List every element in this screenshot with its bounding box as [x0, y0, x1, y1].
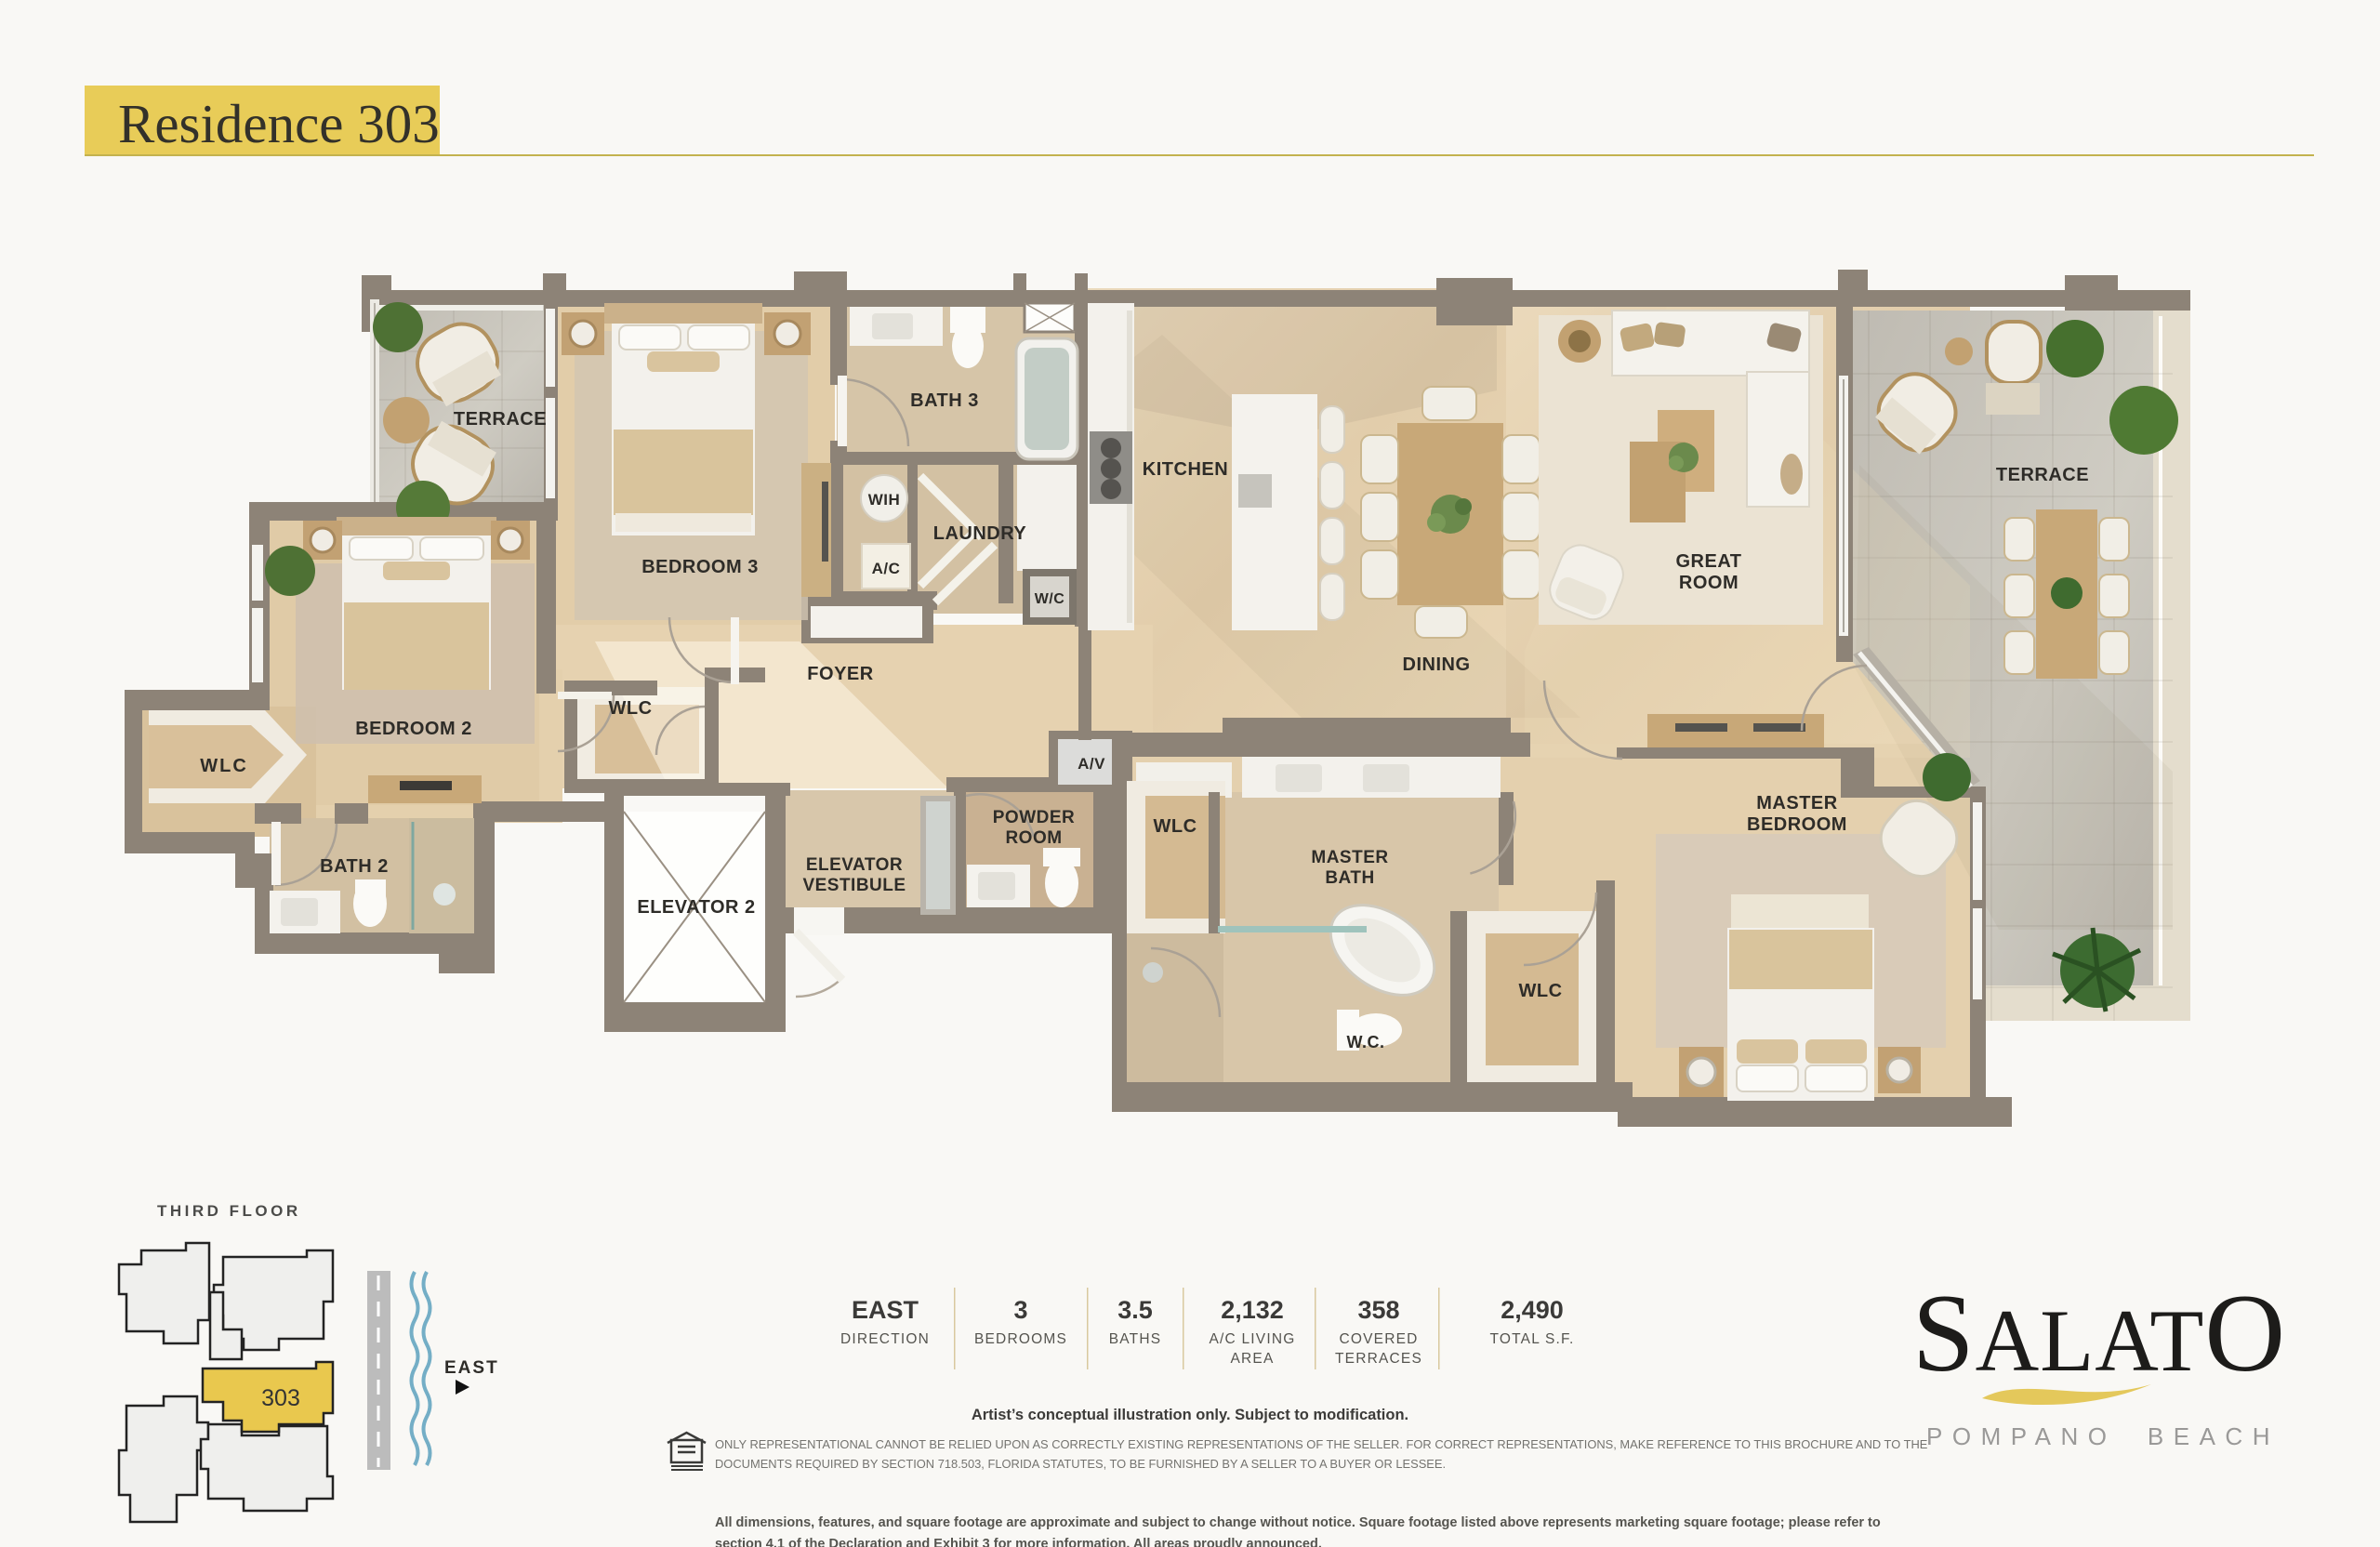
svg-text:WIH: WIH	[868, 491, 901, 509]
svg-text:BEDROOM 3: BEDROOM 3	[641, 557, 759, 577]
svg-text:EAST: EAST	[444, 1358, 499, 1378]
svg-text:COVERED: COVERED	[1339, 1331, 1418, 1347]
svg-text:BEDROOM 2: BEDROOM 2	[355, 719, 472, 739]
svg-text:A/C: A/C	[872, 560, 901, 577]
svg-text:ONLY REPRESENTATIONAL CANNOT B: ONLY REPRESENTATIONAL CANNOT BE RELIED U…	[715, 1437, 1928, 1451]
svg-text:3: 3	[1013, 1296, 1027, 1324]
svg-text:TOTAL S.F.: TOTAL S.F.	[1490, 1331, 1575, 1347]
svg-text:BATH: BATH	[1325, 868, 1374, 888]
svg-text:DIRECTION: DIRECTION	[840, 1331, 930, 1347]
svg-text:W/C: W/C	[1035, 591, 1065, 607]
svg-text:BATH 3: BATH 3	[910, 390, 979, 411]
svg-text:POMPANO BEACH: POMPANO BEACH	[1926, 1422, 2280, 1450]
svg-text:DINING: DINING	[1403, 654, 1471, 675]
svg-text:WLC: WLC	[1518, 981, 1562, 1001]
svg-text:POWDER: POWDER	[993, 808, 1076, 827]
svg-text:ROOM: ROOM	[1679, 573, 1739, 593]
svg-text:BATHS: BATHS	[1109, 1331, 1162, 1347]
svg-text:TERRACE: TERRACE	[454, 409, 547, 430]
svg-text:ELEVATOR 2: ELEVATOR 2	[637, 897, 755, 918]
svg-text:ELEVATOR: ELEVATOR	[806, 855, 903, 875]
svg-text:BATH 2: BATH 2	[320, 856, 389, 877]
svg-text:KITCHEN: KITCHEN	[1143, 459, 1228, 480]
svg-text:2,490: 2,490	[1501, 1296, 1564, 1324]
svg-text:3.5: 3.5	[1117, 1296, 1153, 1324]
svg-text:WLC: WLC	[608, 698, 652, 719]
svg-text:SALATO: SALATO	[1912, 1271, 2286, 1395]
svg-text:EAST: EAST	[852, 1296, 919, 1324]
svg-text:section 4.1 of the Declaration: section 4.1 of the Declaration and Exhib…	[715, 1537, 1322, 1547]
svg-text:BEDROOM: BEDROOM	[1747, 814, 1847, 835]
svg-text:THIRD FLOOR: THIRD FLOOR	[157, 1202, 301, 1220]
svg-text:358: 358	[1357, 1296, 1399, 1324]
svg-text:WLC: WLC	[200, 756, 248, 776]
svg-text:303: 303	[261, 1385, 300, 1411]
svg-text:LAUNDRY: LAUNDRY	[933, 523, 1027, 544]
svg-text:2,132: 2,132	[1221, 1296, 1284, 1324]
svg-text:A/C LIVING: A/C LIVING	[1210, 1331, 1296, 1347]
svg-text:MASTER: MASTER	[1311, 848, 1388, 867]
svg-text:MASTER: MASTER	[1756, 793, 1838, 813]
svg-text:FOYER: FOYER	[807, 664, 873, 684]
svg-text:BEDROOMS: BEDROOMS	[974, 1331, 1067, 1347]
svg-text:Artist’s conceptual illustrati: Artist’s conceptual illustration only. S…	[972, 1407, 1408, 1423]
svg-text:All dimensions, features, and: All dimensions, features, and square foo…	[715, 1515, 1881, 1530]
svg-text:W.C.: W.C.	[1347, 1033, 1385, 1051]
svg-text:WLC: WLC	[1153, 816, 1197, 837]
svg-text:TERRACE: TERRACE	[1996, 465, 2089, 485]
svg-text:VESTIBULE: VESTIBULE	[802, 876, 906, 895]
svg-text:AREA: AREA	[1230, 1351, 1274, 1367]
svg-text:DOCUMENTS REQUIRED BY SECTION: DOCUMENTS REQUIRED BY SECTION 718.503, F…	[715, 1457, 1446, 1471]
svg-text:A/V: A/V	[1078, 755, 1105, 773]
svg-text:ROOM: ROOM	[1005, 828, 1062, 848]
svg-text:GREAT: GREAT	[1675, 551, 1741, 572]
svg-text:TERRACES: TERRACES	[1335, 1351, 1422, 1367]
